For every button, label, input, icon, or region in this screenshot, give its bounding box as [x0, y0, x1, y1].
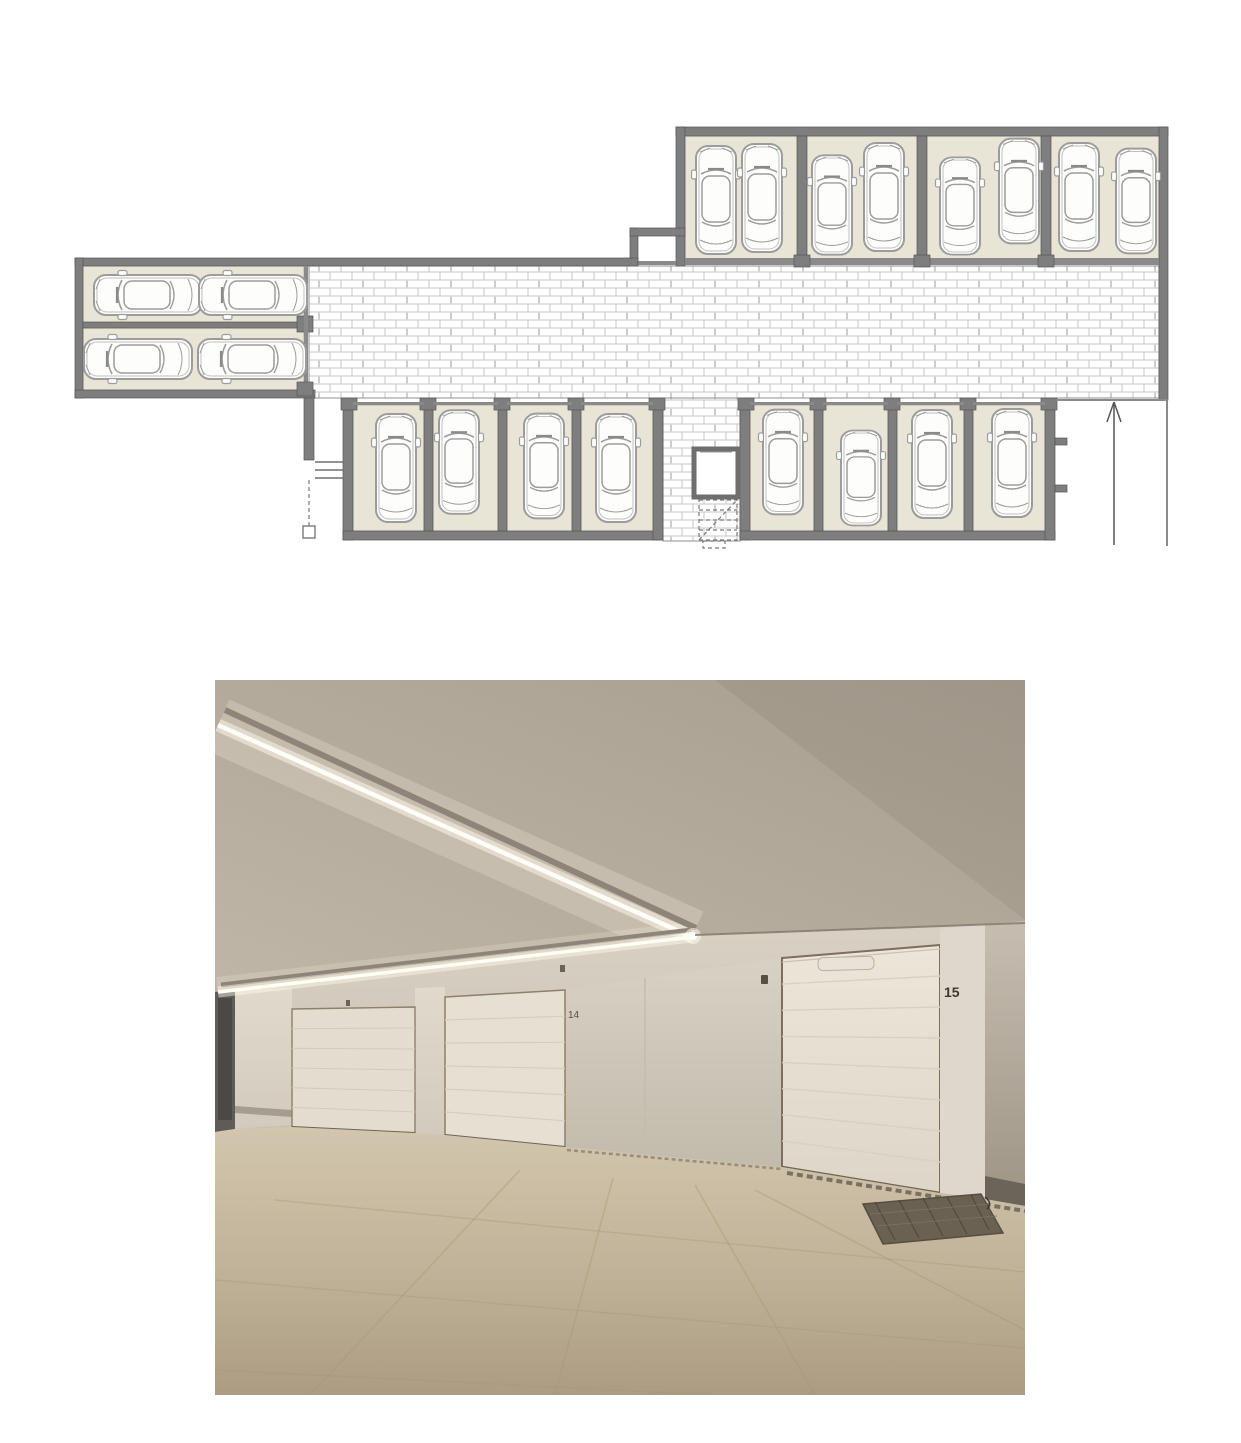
pillar-between-door-1-2: [415, 987, 445, 1135]
elevator: [694, 449, 738, 497]
parked-car: [592, 414, 641, 522]
right-side-wall: [985, 921, 1025, 1206]
parked-car: [520, 414, 569, 519]
garage-door-number-14: 14: [568, 1010, 580, 1021]
ramp-up-arrow: [1107, 402, 1121, 545]
garage-interior-photo: 14 15: [215, 680, 1025, 1395]
parked-car: [808, 155, 857, 254]
parked-car: [198, 335, 306, 384]
parked-car: [692, 146, 741, 254]
garage-door-number-15: 15: [944, 984, 960, 1000]
left-corridor-opening: [215, 990, 236, 1132]
parked-car: [94, 271, 202, 320]
parked-car: [84, 335, 192, 384]
wall-sign: [761, 975, 768, 984]
parked-car: [837, 430, 886, 525]
garage-door-3: [761, 945, 940, 1193]
parked-car: [759, 410, 808, 515]
ceiling-vent: [818, 956, 874, 970]
wall-between-door-2-3: [565, 958, 782, 1167]
parked-car: [738, 144, 787, 252]
parked-car: [988, 409, 1037, 517]
parked-car: [372, 414, 421, 522]
parking-floor-plan: [0, 0, 1241, 620]
parked-car: [1055, 143, 1104, 251]
parked-car: [199, 271, 307, 320]
parked-car: [860, 143, 909, 251]
parked-car: [908, 410, 957, 518]
parked-car: [995, 139, 1044, 244]
door-1-number-plate: [346, 1000, 350, 1006]
parked-car: [936, 157, 985, 254]
garage-door-1: [292, 1000, 415, 1133]
parked-car: [1112, 149, 1161, 254]
exterior-stairs: [303, 462, 343, 538]
door-2-number-plate: [560, 965, 565, 972]
pillar-door-15: [940, 924, 985, 1199]
parked-car: [435, 410, 484, 514]
